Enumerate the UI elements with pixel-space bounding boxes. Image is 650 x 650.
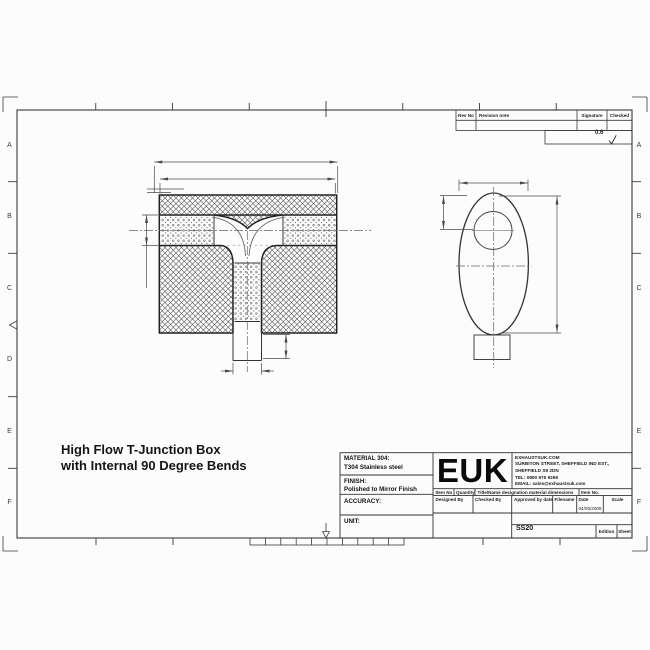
col-filename: Filename (555, 497, 575, 502)
col-item-no2: Item No. (581, 490, 599, 495)
company-line4: TEL: 0800 975 9268 (515, 475, 609, 482)
company-line5: EMAIL: sales@exhaustsuk.com (515, 481, 609, 488)
company-line2: SURBITON STREET, SHEFFIELD IND EST., (515, 461, 609, 468)
edition-label: Edition (596, 529, 617, 534)
col-date: Date (579, 497, 589, 502)
material-label: MATERIAL 304: (344, 455, 390, 462)
drawing-title: High Flow T-Junction Box with Internal 9… (61, 442, 247, 473)
side-centerlines (456, 187, 532, 368)
grid-letter-left-c: C (5, 285, 15, 292)
company-line1: EXHAUSTSUK.COM (515, 455, 609, 462)
col-scale: Scale (603, 497, 632, 502)
checked-header: Checked (607, 113, 632, 118)
finish-label: FINISH: (344, 478, 366, 485)
drawing-title-line1: High Flow T-Junction Box (61, 442, 247, 458)
grid-letter-left-a: A (5, 142, 15, 149)
finish-value: Polished to Mirror Finish (344, 486, 417, 493)
filename-value: SS20 (516, 525, 533, 532)
revision-note-header: Revision note (479, 113, 509, 118)
col-approved-by: Approved by date (514, 497, 553, 502)
date-value: 04/06/2009 (577, 506, 603, 511)
col-item-no: Item No (436, 490, 453, 495)
col-quantity: Quantity (456, 490, 475, 495)
grid-letter-right-c: C (634, 285, 644, 292)
surface-finish-symbol (609, 135, 616, 144)
company-logo: EUK (433, 453, 512, 488)
front-view (129, 162, 371, 375)
side-view (440, 180, 561, 369)
drawing-sheet-photo: { "sheet": { "grid_letters_left": ["A","… (0, 0, 650, 650)
col-title-name: Title/Name designation material dimensio… (478, 490, 574, 495)
grid-letter-right-b: B (634, 213, 644, 220)
accuracy-label: ACCURACY: (344, 498, 381, 505)
outlet-stub (474, 335, 510, 360)
grid-letter-right-a: A (634, 142, 644, 149)
material-value: T304 Stainless steel (344, 464, 403, 471)
sheet-label: Sheet (617, 529, 632, 534)
signature-header: Signature (577, 113, 607, 118)
reference-ruler (250, 538, 404, 545)
surface-finish-value: 0.6 (595, 130, 603, 136)
grid-letter-left-d: D (5, 356, 15, 363)
col-checked-by: Checked By (475, 497, 501, 502)
company-line3: SHEFFIELD S9 2DN (515, 468, 609, 475)
drawing-linework (0, 0, 650, 650)
company-address: EXHAUSTSUK.COM SURBITON STREET, SHEFFIEL… (515, 455, 609, 489)
grid-letter-left-e: E (5, 428, 15, 435)
grid-letter-right-f: F (634, 499, 644, 506)
grid-letter-left-f: F (5, 499, 15, 506)
grid-letter-left-b: B (5, 213, 15, 220)
grid-letter-right-e: E (634, 428, 644, 435)
col-designed-by: Designed By (436, 497, 464, 502)
drawing-title-line2: with Internal 90 Degree Bends (61, 458, 247, 474)
unit-label: UNIT: (344, 518, 360, 525)
rev-no-header: Rev No (458, 113, 474, 118)
side-dimensions (440, 180, 561, 334)
